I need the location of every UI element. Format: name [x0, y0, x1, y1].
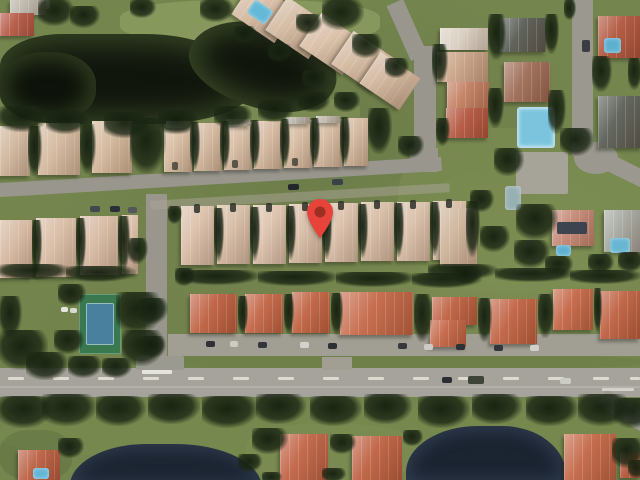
road-marking — [188, 377, 204, 380]
building-roof — [564, 434, 616, 480]
car — [560, 378, 571, 384]
tree-canopy — [436, 118, 450, 146]
picnic-table — [61, 307, 68, 312]
tree-canopy — [96, 396, 146, 426]
tree-canopy — [238, 454, 262, 472]
tree-canopy — [280, 119, 290, 167]
chimney — [266, 203, 272, 212]
tree-canopy — [364, 394, 412, 424]
tree-canopy — [298, 92, 330, 112]
car — [230, 341, 238, 347]
tree-canopy — [284, 294, 294, 334]
tree-canopy — [310, 396, 362, 426]
tree-canopy — [478, 298, 492, 342]
tree-canopy — [286, 206, 296, 260]
tree-canopy — [480, 226, 510, 252]
building-roof — [352, 436, 402, 480]
tree-canopy — [472, 394, 522, 424]
car — [328, 343, 337, 349]
tree-canopy — [58, 284, 86, 306]
car — [398, 343, 407, 349]
tree-canopy — [352, 34, 382, 58]
tree-canopy — [418, 396, 470, 428]
tree-canopy — [545, 256, 573, 276]
chimney — [374, 200, 380, 209]
map-canvas[interactable] — [0, 0, 640, 480]
road-marking — [368, 377, 384, 380]
chimney — [230, 203, 236, 212]
tree-canopy — [526, 396, 578, 426]
tree-canopy — [340, 117, 350, 165]
car — [300, 342, 309, 348]
tree-canopy — [310, 118, 320, 166]
tree-canopy — [128, 238, 148, 264]
tree-canopy — [175, 268, 195, 286]
road-marking — [143, 377, 159, 380]
tree-canopy — [38, 0, 74, 26]
car — [258, 342, 267, 348]
tree-canopy — [358, 204, 368, 258]
chimney — [172, 162, 178, 170]
tree-canopy — [592, 56, 612, 92]
tree-canopy — [594, 288, 602, 332]
chimney — [446, 199, 452, 208]
building-roof — [553, 289, 593, 330]
car — [332, 179, 343, 186]
road-marking — [0, 386, 640, 388]
tree-canopy — [252, 428, 288, 454]
pin-inner-circle — [315, 207, 326, 218]
car — [110, 206, 120, 212]
tree-canopy — [302, 70, 326, 88]
tree-canopy — [538, 294, 554, 338]
tree-canopy — [268, 44, 292, 62]
tree-canopy — [42, 394, 96, 426]
truck — [468, 376, 484, 384]
tree-canopy — [130, 0, 156, 18]
road-marking — [503, 377, 519, 380]
building-roof — [500, 18, 546, 52]
car — [494, 345, 503, 351]
tree-canopy — [296, 14, 322, 34]
tree-canopy — [432, 44, 448, 84]
tree-canopy — [403, 430, 423, 446]
tree-canopy — [190, 122, 200, 170]
tree-canopy — [70, 6, 100, 28]
tree-canopy — [564, 0, 576, 20]
building-roof — [0, 126, 30, 176]
swimming-pool — [604, 38, 621, 53]
tree-canopy — [250, 207, 260, 261]
building-roof — [181, 206, 214, 265]
tree-canopy — [130, 118, 166, 174]
tree-canopy — [26, 352, 68, 380]
car — [530, 345, 539, 351]
building-roof — [0, 13, 34, 36]
chimney — [194, 204, 200, 213]
tree-canopy — [28, 126, 42, 176]
road-marking — [602, 388, 634, 391]
car — [288, 184, 299, 191]
tree-canopy — [368, 108, 392, 154]
tree-canopy — [330, 434, 356, 454]
tree-canopy — [118, 216, 130, 272]
tree-canopy — [628, 58, 640, 90]
tree-canopy — [102, 358, 132, 378]
tree-canopy — [322, 468, 346, 480]
solar-panels — [557, 222, 587, 234]
pin-body — [307, 199, 333, 238]
tree-canopy — [398, 136, 424, 158]
tree-canopy — [614, 398, 640, 428]
building-roof — [600, 291, 640, 339]
tree-canopy — [394, 203, 404, 257]
tree-canopy — [68, 356, 102, 378]
road-marking — [8, 377, 24, 380]
tree-canopy — [331, 293, 343, 335]
tree-canopy — [628, 460, 640, 478]
building-roof — [340, 292, 413, 335]
tree-canopy — [336, 272, 416, 287]
road-marking — [233, 377, 249, 380]
building-roof — [446, 108, 488, 138]
road-marking — [593, 377, 609, 380]
tree-canopy — [54, 330, 84, 354]
tree-canopy — [516, 204, 558, 240]
tree-canopy — [262, 472, 282, 480]
tree-canopy — [250, 120, 260, 168]
swimming-pool — [556, 245, 571, 256]
building-roof — [245, 294, 283, 333]
tree-canopy — [58, 438, 84, 458]
tree-canopy — [414, 294, 432, 342]
road-marking — [413, 377, 429, 380]
car — [442, 377, 452, 383]
tree-canopy — [385, 58, 409, 78]
road-marking — [278, 377, 294, 380]
road-marking — [323, 377, 339, 380]
car — [424, 344, 433, 350]
tennis-court-surface — [86, 303, 114, 345]
tree-canopy — [334, 92, 360, 112]
road-marking — [630, 377, 640, 380]
swimming-pool — [610, 238, 630, 253]
tree-canopy — [560, 128, 594, 156]
tree-canopy — [545, 14, 559, 54]
tree-canopy — [256, 394, 306, 424]
tree-canopy — [322, 0, 364, 30]
building-roof — [447, 82, 489, 108]
tree-canopy — [238, 296, 248, 334]
building-roof — [598, 96, 640, 148]
car — [582, 40, 590, 52]
road — [322, 357, 352, 370]
tree-canopy — [258, 271, 338, 286]
building-roof — [504, 62, 550, 102]
chimney — [292, 158, 298, 166]
tree-canopy — [148, 394, 200, 424]
building-roof — [292, 292, 330, 333]
tree-canopy — [200, 0, 234, 22]
building-roof — [190, 294, 237, 333]
tree-canopy — [202, 396, 258, 428]
tree-canopy — [168, 206, 182, 224]
picnic-table — [70, 308, 77, 313]
tree-canopy — [588, 254, 614, 274]
tree-canopy — [76, 218, 86, 272]
chimney — [338, 201, 344, 210]
building-roof — [490, 299, 537, 344]
building-roof — [430, 320, 466, 347]
swimming-pool — [33, 468, 49, 479]
chimney — [410, 200, 416, 209]
tree-canopy — [470, 190, 494, 212]
tree-canopy — [0, 264, 70, 280]
tree-canopy — [430, 202, 440, 256]
tree-canopy — [618, 252, 640, 272]
car — [128, 207, 137, 213]
tree-canopy — [140, 336, 166, 358]
tree-canopy — [66, 266, 136, 282]
car — [206, 341, 215, 347]
chimney — [232, 160, 238, 168]
tree-canopy — [214, 208, 224, 262]
car — [90, 206, 100, 212]
tree-canopy — [138, 298, 168, 324]
tree-canopy — [488, 14, 506, 60]
stop-bar — [142, 370, 172, 374]
tree-canopy — [452, 266, 482, 284]
tree-canopy — [220, 121, 230, 169]
car — [456, 344, 465, 350]
map-pin[interactable] — [303, 197, 337, 243]
tree-canopy — [234, 26, 256, 44]
tree-canopy — [494, 148, 524, 176]
tree-canopy — [488, 88, 504, 128]
tree-canopy — [80, 124, 96, 174]
